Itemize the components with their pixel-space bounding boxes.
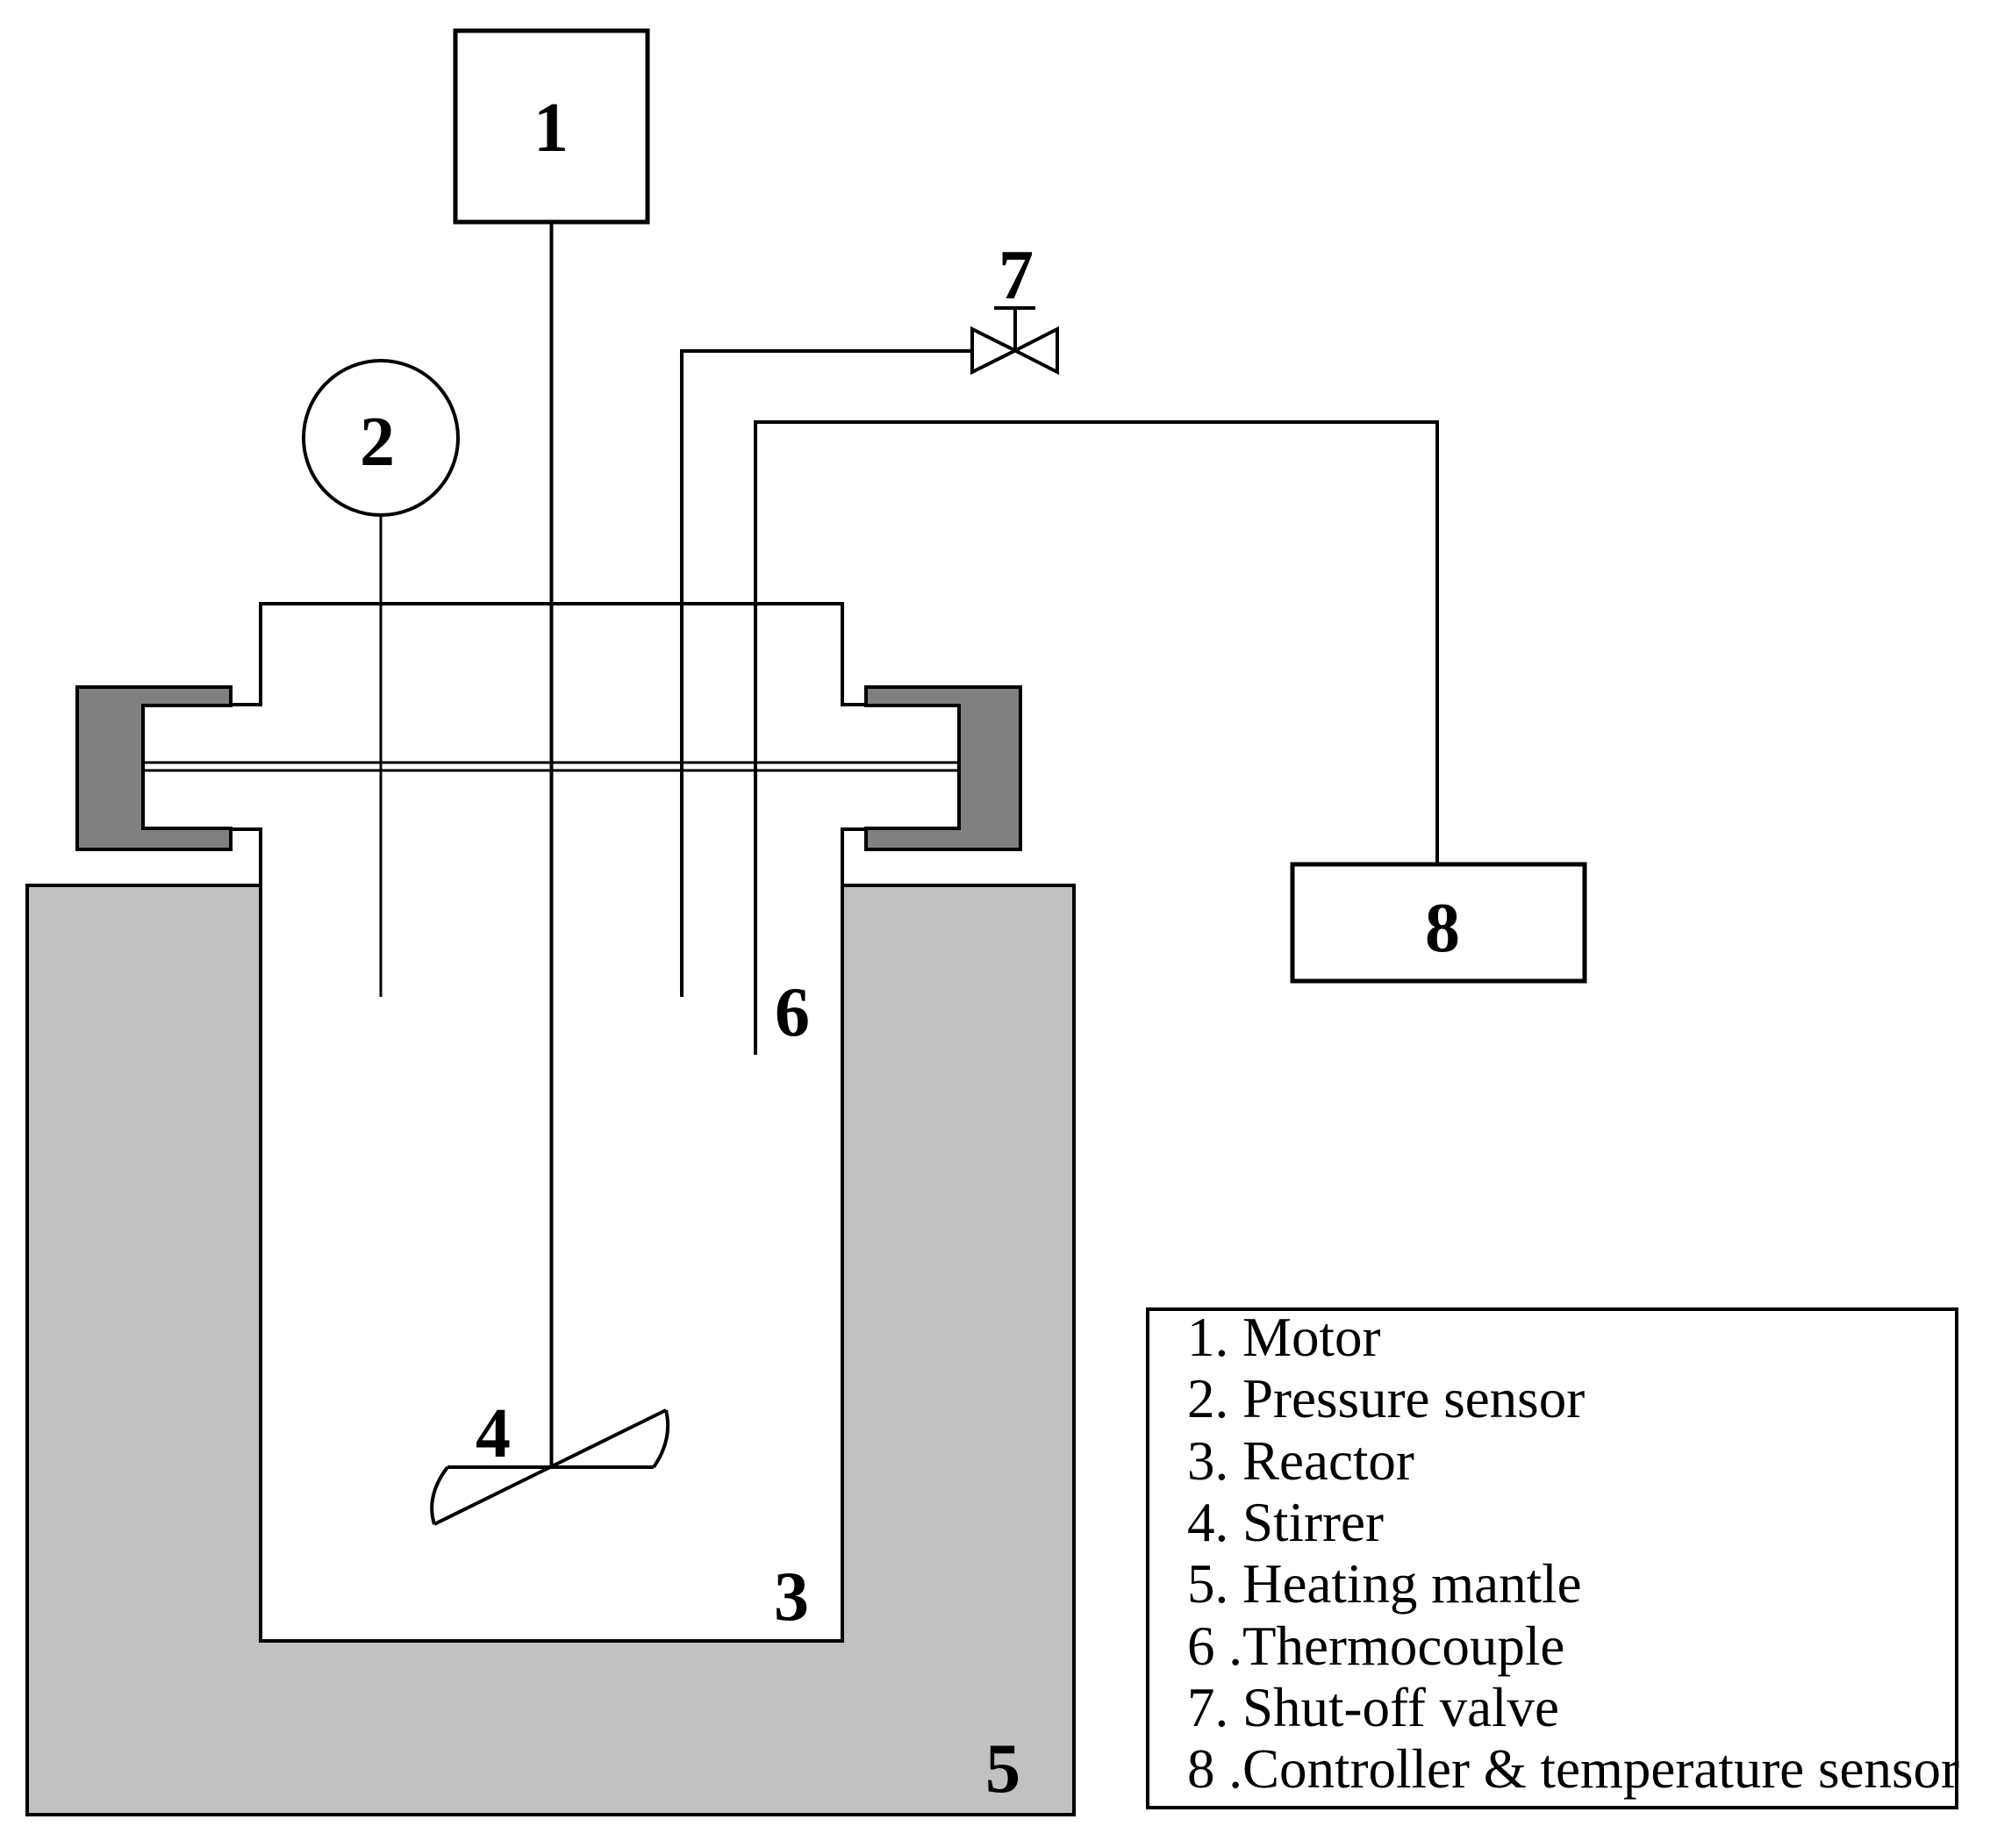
legend-item-motor: 1. Motor — [1187, 1307, 1381, 1368]
legend-item-controller: 8 .Controller & temperature sensor — [1187, 1738, 1959, 1800]
controller-label: 8 — [1425, 890, 1460, 967]
diagram-canvas: 1 2 3 4 5 6 7 8 1. Motor 2. Pressure sen… — [0, 0, 1990, 1848]
stirrer-label: 4 — [476, 1395, 511, 1472]
legend-item-pressure-sensor: 2. Pressure sensor — [1187, 1368, 1585, 1429]
valve-body-left-triangle — [972, 329, 1015, 372]
legend-item-heating-mantle: 5. Heating mantle — [1187, 1553, 1582, 1615]
heating-mantle-label: 5 — [985, 1730, 1020, 1808]
legend-item-reactor: 3. Reactor — [1187, 1430, 1414, 1492]
motor-label: 1 — [533, 90, 569, 167]
schematic-page: 1 2 3 4 5 6 7 8 1. Motor 2. Pressure sen… — [0, 0, 1990, 1848]
reactor-label: 3 — [774, 1558, 809, 1636]
shut-off-valve-label: 7 — [999, 237, 1034, 314]
shut-off-valve-icon — [972, 308, 1057, 372]
valve-body-right-triangle — [1015, 329, 1057, 372]
legend-item-thermocouple: 6 .Thermocouple — [1187, 1615, 1564, 1677]
legend-item-shut-off-valve: 7. Shut-off valve — [1187, 1677, 1559, 1738]
thermocouple-label: 6 — [775, 974, 810, 1051]
legend-item-stirrer: 4. Stirrer — [1187, 1492, 1384, 1553]
pressure-sensor-label: 2 — [360, 404, 395, 481]
